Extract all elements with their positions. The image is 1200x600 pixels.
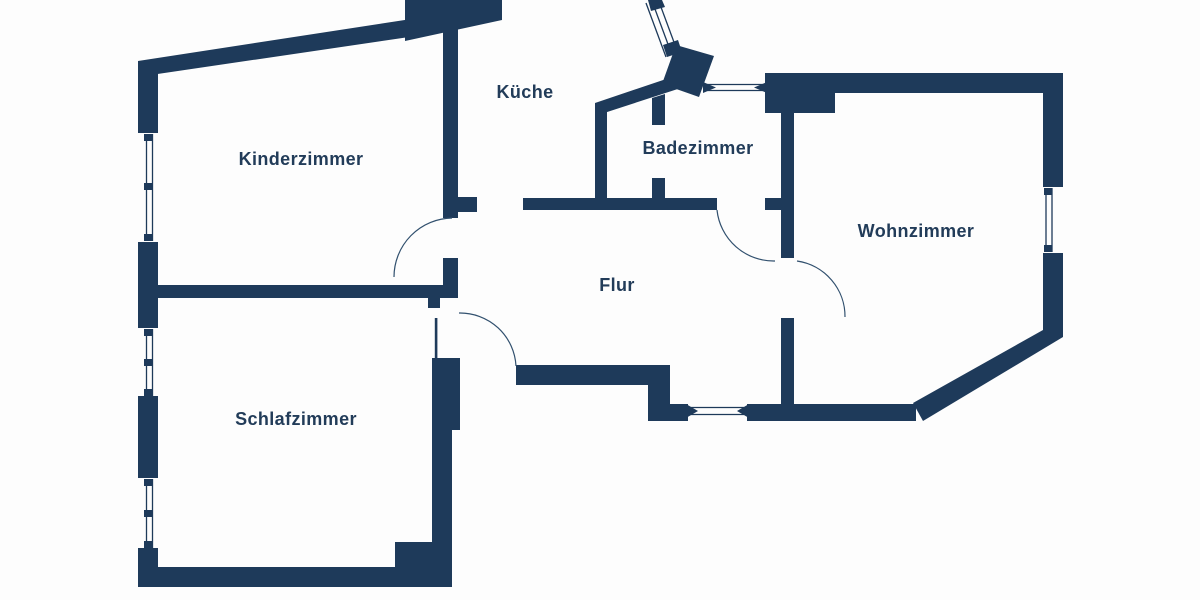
top-window-wedge-left [703, 82, 716, 93]
window-tick [144, 541, 152, 548]
nook-wall-block [670, 404, 688, 421]
room-label-flur: Flur [599, 275, 635, 295]
schlaf-door-stub [428, 298, 440, 308]
bad-west-wall [595, 103, 607, 210]
kinder-schlaf-dividing-wall [152, 285, 458, 298]
wohn-diagonal-wall [913, 330, 1063, 421]
window-tick [144, 134, 152, 141]
room-label-wohnzimmer: Wohnzimmer [858, 221, 975, 241]
schlaf-se-corner-block [395, 542, 452, 587]
kueche-entry-stub [458, 197, 477, 212]
nook-window-wedge-right [737, 404, 749, 418]
schlaf-door-arc [459, 313, 516, 366]
wohn-door-arc [797, 261, 845, 317]
left-wall-segment-a [138, 61, 158, 133]
wohn-bottom-wall [747, 404, 916, 421]
window-tick [144, 389, 152, 396]
window-tick [1044, 188, 1052, 195]
schlaf-right-wall-upper [432, 358, 460, 430]
wohn-right-wall [1043, 253, 1063, 337]
window-tick [144, 479, 152, 486]
room-label-badezimmer: Badezimmer [642, 138, 753, 158]
floor-plan-page: KinderzimmerKücheBadezimmerWohnzimmerFlu… [0, 0, 1200, 600]
window-tick [144, 234, 152, 241]
room-label-kueche: Küche [496, 82, 553, 102]
window-tick [1044, 245, 1052, 252]
flur-step-wall [648, 385, 670, 421]
wohn-ne-corner-block [1043, 73, 1063, 187]
left-wall-segment-c [138, 396, 158, 478]
window-tick [144, 329, 152, 336]
flur-wohn-wall-lower [781, 318, 794, 415]
window-tick [144, 510, 152, 517]
wohn-north-wall [765, 73, 1063, 93]
schlaf-bottom-wall [138, 567, 400, 587]
nook-window-wedge-left [686, 404, 698, 418]
kinder-right-wall [443, 24, 458, 218]
floor-plan: KinderzimmerKücheBadezimmerWohnzimmerFlu… [0, 0, 1200, 600]
flur-wohn-stub [765, 198, 781, 210]
room-label-kinderzimmer: Kinderzimmer [239, 149, 364, 169]
schlaf-door-leaf [435, 318, 438, 358]
bad-partition-stub-upper [652, 94, 665, 125]
room-label-schlafzimmer: Schlafzimmer [235, 409, 357, 429]
flur-top-wall [523, 198, 717, 210]
bad-partition-stub-lower [652, 178, 665, 210]
flur-wohn-wall-upper [781, 113, 794, 258]
kinder-right-wall-lower [443, 258, 458, 298]
bad-door-arc [717, 210, 775, 261]
window-tick [144, 183, 152, 190]
window-tick [144, 359, 152, 366]
flur-bottom-wall [516, 365, 670, 385]
